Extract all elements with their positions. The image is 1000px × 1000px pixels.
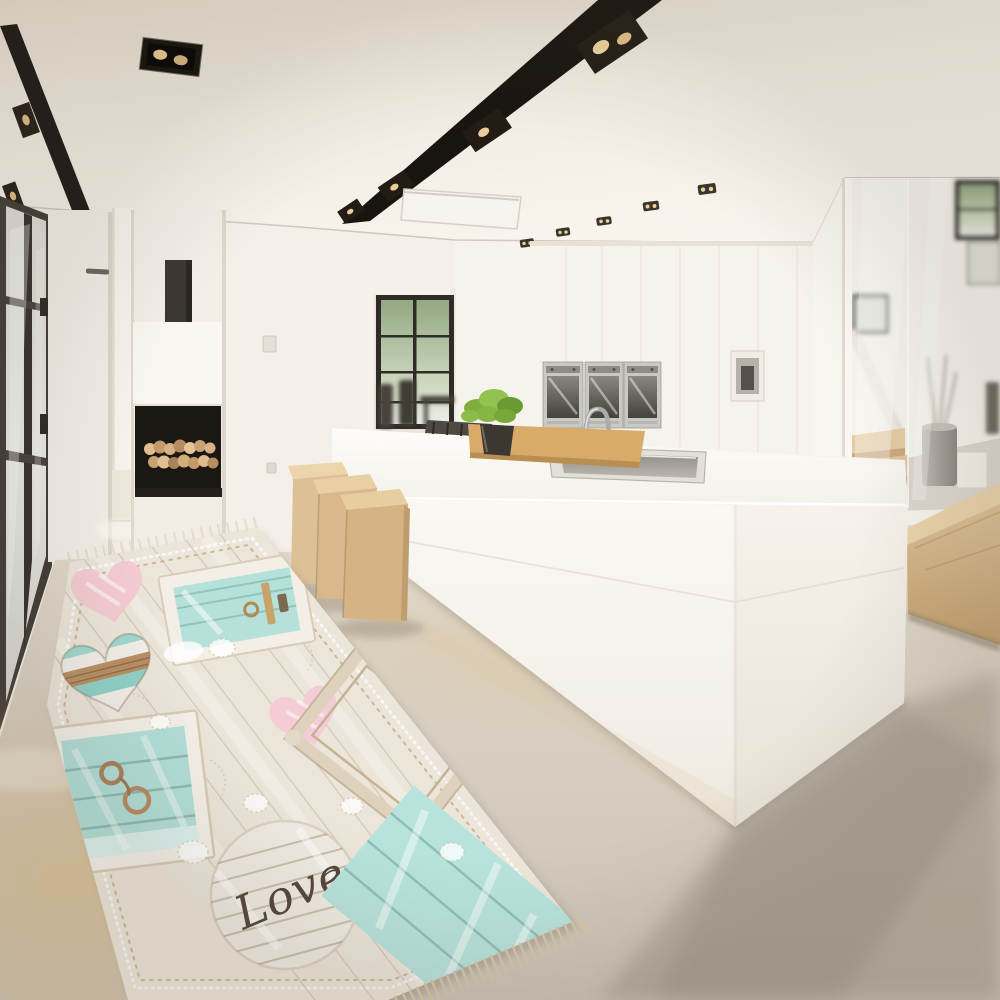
kitchen-photo-canvas: Love xyxy=(0,0,1000,1000)
kitchen-scene: Love xyxy=(0,0,1000,1000)
vignette-overlay xyxy=(0,0,1000,1000)
